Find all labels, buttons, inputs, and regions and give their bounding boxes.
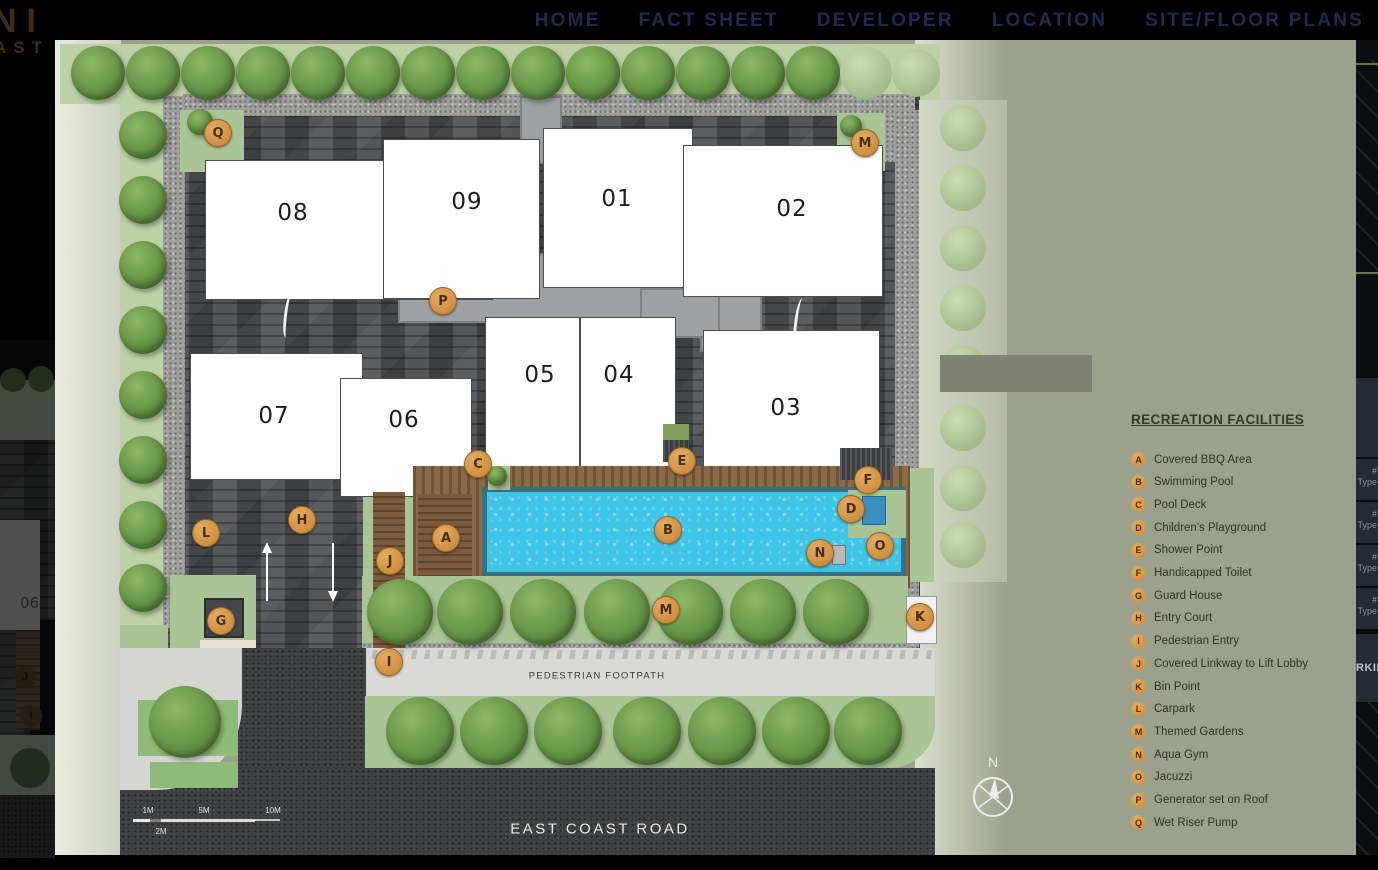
- east-coast-road-label: EAST COAST ROAD: [510, 821, 689, 838]
- facility-marker-o: O: [866, 532, 894, 560]
- jacuzzi-feature: [862, 496, 886, 525]
- legend-badge-o: O: [1131, 770, 1146, 785]
- building-label-06: 06: [388, 407, 419, 433]
- legend-item-a: ACovered BBQ Area: [1131, 452, 1252, 467]
- building-label-03: 03: [770, 395, 801, 421]
- legend-badge-k: K: [1131, 679, 1146, 694]
- shower-planter-green: [663, 424, 689, 440]
- parking-row[interactable]: RKIN: [1356, 632, 1378, 702]
- facility-marker-c: C: [464, 450, 492, 478]
- legend-badge-f: F: [1131, 566, 1146, 581]
- legend-label: Pedestrian Entry: [1154, 635, 1239, 647]
- previous-slide-art: 06JI: [0, 340, 55, 858]
- legend-item-e: EShower Point: [1131, 543, 1222, 558]
- tree: [291, 46, 345, 100]
- legend-item-o: OJacuzzi: [1131, 770, 1192, 785]
- facility-marker-m-2: M: [652, 596, 680, 624]
- main-nav: HOMEFACT SHEETDEVELOPERLOCATIONSITE/FLOO…: [535, 10, 1364, 32]
- row-unit-text: #: [1356, 552, 1377, 562]
- tree: [460, 697, 528, 765]
- legend-item-h: HEntry Court: [1131, 611, 1212, 626]
- tree: [119, 176, 167, 224]
- legend-badge-g: G: [1131, 588, 1146, 603]
- legend-label: Swimming Pool: [1154, 476, 1233, 488]
- facility-marker-e: E: [668, 447, 696, 475]
- left-boundary-wall: [163, 96, 185, 628]
- prev-tree: [28, 366, 54, 392]
- legend-label: Jacuzzi: [1154, 771, 1192, 783]
- tree: [676, 46, 730, 100]
- tree: [119, 501, 167, 549]
- legend-item-l: LCarpark: [1131, 702, 1195, 717]
- tree: [730, 579, 796, 645]
- svg-text:N: N: [988, 754, 998, 770]
- tree: [566, 46, 620, 100]
- facility-marker-a: A: [432, 524, 460, 552]
- tree: [786, 46, 840, 100]
- legend-label: Generator set on Roof: [1154, 794, 1268, 806]
- nav-item-developer[interactable]: DEVELOPER: [817, 10, 954, 32]
- tree: [437, 579, 503, 645]
- facility-marker-b: B: [654, 516, 682, 544]
- facility-marker-f: F: [854, 466, 882, 494]
- tree: [367, 579, 433, 645]
- legend-item-p: PGenerator set on Roof: [1131, 793, 1268, 808]
- scale-bar-segment: [133, 819, 150, 822]
- tree: [119, 371, 167, 419]
- panel-texture: [1356, 60, 1378, 275]
- site-logo[interactable]: NI AST: [0, 0, 62, 62]
- legend-label: Handicapped Toilet: [1154, 567, 1252, 579]
- tree: [534, 697, 602, 765]
- tree: [940, 165, 986, 211]
- building-label-07: 07: [258, 403, 289, 429]
- previous-slide-preview[interactable]: 06JI: [0, 340, 55, 858]
- legend-item-b: BSwimming Pool: [1131, 475, 1233, 490]
- legend-label: Guard House: [1154, 590, 1222, 602]
- legend-badge-m: M: [1131, 724, 1146, 739]
- legend-label: Themed Gardens: [1154, 726, 1244, 738]
- tree: [762, 697, 830, 765]
- floor-plan-row[interactable]: #Type: [1356, 586, 1378, 629]
- tree: [126, 46, 180, 100]
- tree: [731, 46, 785, 100]
- floor-plan-row[interactable]: #Type: [1356, 543, 1378, 586]
- legend-item-q: QWet Riser Pump: [1131, 815, 1238, 830]
- nav-item-fact-sheet[interactable]: FACT SHEET: [638, 10, 778, 32]
- legend-label: Shower Point: [1154, 544, 1222, 556]
- legend-badge-q: Q: [1131, 815, 1146, 830]
- tree: [119, 436, 167, 484]
- panel-divider: [1356, 272, 1378, 274]
- tree: [834, 697, 902, 765]
- compass-icon: N: [964, 752, 1022, 824]
- scale-tick: 10M: [265, 806, 281, 815]
- legend-label: Covered BBQ Area: [1154, 454, 1252, 466]
- legend-badge-p: P: [1131, 793, 1146, 808]
- tree: [386, 697, 454, 765]
- tree: [940, 405, 986, 451]
- row-type-text: Type: [1356, 563, 1377, 573]
- tree: [71, 46, 125, 100]
- facility-marker-k: K: [906, 603, 934, 631]
- legend-item-c: CPool Deck: [1131, 497, 1206, 512]
- legend-label: Bin Point: [1154, 681, 1200, 693]
- scale-tick: 5M: [198, 806, 209, 815]
- legend-badge-j: J: [1131, 656, 1146, 671]
- building-label-01: 01: [601, 186, 632, 212]
- tree: [940, 285, 986, 331]
- legend-item-m: MThemed Gardens: [1131, 724, 1244, 739]
- tree: [940, 465, 986, 511]
- floor-plan-row-header: [1356, 378, 1378, 457]
- legend-badge-e: E: [1131, 543, 1146, 558]
- tree: [510, 579, 576, 645]
- floor-plan-row[interactable]: #Type: [1356, 500, 1378, 543]
- legend-item-n: NAqua Gym: [1131, 747, 1208, 762]
- legend-badge-b: B: [1131, 475, 1146, 490]
- corner-grass-2: [150, 762, 238, 788]
- facility-marker-p: P: [429, 287, 457, 315]
- legend-badge-a: A: [1131, 452, 1146, 467]
- floor-plan-row[interactable]: #Type: [1356, 457, 1378, 500]
- legend-label: Entry Court: [1154, 612, 1212, 624]
- drive-arrow-out: [328, 542, 338, 602]
- tree: [803, 579, 869, 645]
- scale-bar-segment: [161, 819, 255, 822]
- legend-badge-d: D: [1131, 520, 1146, 535]
- legend-item-j: JCovered Linkway to Lift Lobby: [1131, 656, 1308, 671]
- building-label-04: 04: [603, 362, 634, 388]
- legend-item-d: DChildren's Playground: [1131, 520, 1266, 535]
- tree: [236, 46, 290, 100]
- tree: [613, 697, 681, 765]
- tree: [119, 111, 167, 159]
- facility-marker-h: H: [288, 506, 316, 534]
- legend-title: RECREATION FACILITIES: [1131, 412, 1304, 427]
- facility-marker-n: N: [806, 539, 834, 567]
- scale-bar: 1M5M10M2M: [133, 798, 293, 838]
- tree: [584, 579, 650, 645]
- building-label-08: 08: [277, 200, 308, 226]
- tree: [149, 686, 221, 758]
- nav-item-location[interactable]: LOCATION: [992, 10, 1107, 32]
- tree: [840, 47, 892, 99]
- legend-label: Aqua Gym: [1154, 749, 1208, 761]
- row-type-text: Type: [1356, 606, 1377, 616]
- tree: [511, 46, 565, 100]
- tree: [119, 564, 167, 612]
- prev-tree: [0, 368, 26, 392]
- facility-marker-q: Q: [204, 119, 232, 147]
- tree: [892, 49, 940, 97]
- prev-marker-i: I: [20, 705, 42, 727]
- tree: [181, 46, 235, 100]
- tree: [119, 306, 167, 354]
- legend-badge-i: I: [1131, 634, 1146, 649]
- building-09: [383, 139, 540, 299]
- scale-tick: 1M: [142, 806, 153, 815]
- row-type-text: Type: [1356, 477, 1377, 487]
- legend-label: Children's Playground: [1154, 522, 1266, 534]
- legend-badge-h: H: [1131, 611, 1146, 626]
- side-road-stub: [940, 355, 1092, 392]
- prev-road: [0, 795, 55, 858]
- building-label-09: 09: [451, 189, 482, 215]
- legend-badge-l: L: [1131, 702, 1146, 717]
- image-left-fade: [55, 40, 121, 855]
- legend-label: Pool Deck: [1154, 499, 1206, 511]
- scale-bar-segment: [255, 819, 280, 821]
- legend-label: Carpark: [1154, 703, 1195, 715]
- legend-label: Covered Linkway to Lift Lobby: [1154, 658, 1308, 670]
- legend-badge-n: N: [1131, 747, 1146, 762]
- facility-marker-i: I: [375, 648, 403, 676]
- entrance-driveway: [238, 648, 366, 773]
- tree: [940, 522, 986, 568]
- pedestrian-footpath-label: PEDESTRIAN FOOTPATH: [529, 671, 665, 682]
- prev-marker-j: J: [14, 666, 36, 688]
- aqua-gym-equipment: [832, 545, 846, 565]
- left-green-end: [120, 625, 168, 650]
- tree: [940, 225, 986, 271]
- building-label-02: 02: [776, 196, 807, 222]
- building-label-05: 05: [524, 362, 555, 388]
- row-unit-text: #: [1356, 466, 1377, 476]
- logo-text-top: NI: [0, 2, 46, 41]
- legend-label: Wet Riser Pump: [1154, 817, 1238, 829]
- tree: [940, 105, 986, 151]
- drive-arrow-in: [262, 542, 272, 602]
- legend-item-g: GGuard House: [1131, 588, 1222, 603]
- tree: [346, 46, 400, 100]
- legend-item-k: KBin Point: [1131, 679, 1200, 694]
- recreation-facilities-legend: RECREATION FACILITIES ACovered BBQ AreaB…: [1131, 412, 1304, 443]
- tree: [621, 46, 675, 100]
- panel-texture-bottom: [1356, 702, 1378, 855]
- logo-text-bottom: AST: [0, 38, 49, 58]
- tree: [401, 46, 455, 100]
- legend-badge-c: C: [1131, 497, 1146, 512]
- facility-marker-l: L: [192, 519, 220, 547]
- facility-marker-d: D: [837, 495, 865, 523]
- page: HOMEFACT SHEETDEVELOPERLOCATIONSITE/FLOO…: [0, 0, 1378, 870]
- nav-item-home[interactable]: HOME: [535, 10, 601, 32]
- tree: [119, 241, 167, 289]
- row-type-text: Type: [1356, 520, 1377, 530]
- tree: [456, 46, 510, 100]
- floor-plan-list-panel: #Type#Type#Type#TypeRKIN: [1356, 40, 1378, 855]
- tree: [688, 697, 756, 765]
- row-unit-text: #: [1356, 509, 1377, 519]
- scale-bar-segment: [150, 819, 161, 822]
- row-unit-text: #: [1356, 595, 1377, 605]
- scale-sub-tick: 2M: [155, 827, 166, 836]
- facility-marker-g: G: [207, 607, 235, 635]
- parking-label: RKIN: [1356, 662, 1378, 674]
- prev-building-label: 06: [20, 594, 39, 612]
- prev-tree: [10, 748, 50, 788]
- panel-divider: [1356, 63, 1378, 65]
- legend-item-i: IPedestrian Entry: [1131, 634, 1239, 649]
- nav-item-site-floor-plans[interactable]: SITE/FLOOR PLANS: [1145, 10, 1364, 32]
- compass-north-indicator: N: [964, 752, 1022, 829]
- facility-marker-m-2: M: [851, 129, 879, 157]
- legend-item-f: FHandicapped Toilet: [1131, 566, 1252, 581]
- facility-marker-j: J: [376, 547, 404, 575]
